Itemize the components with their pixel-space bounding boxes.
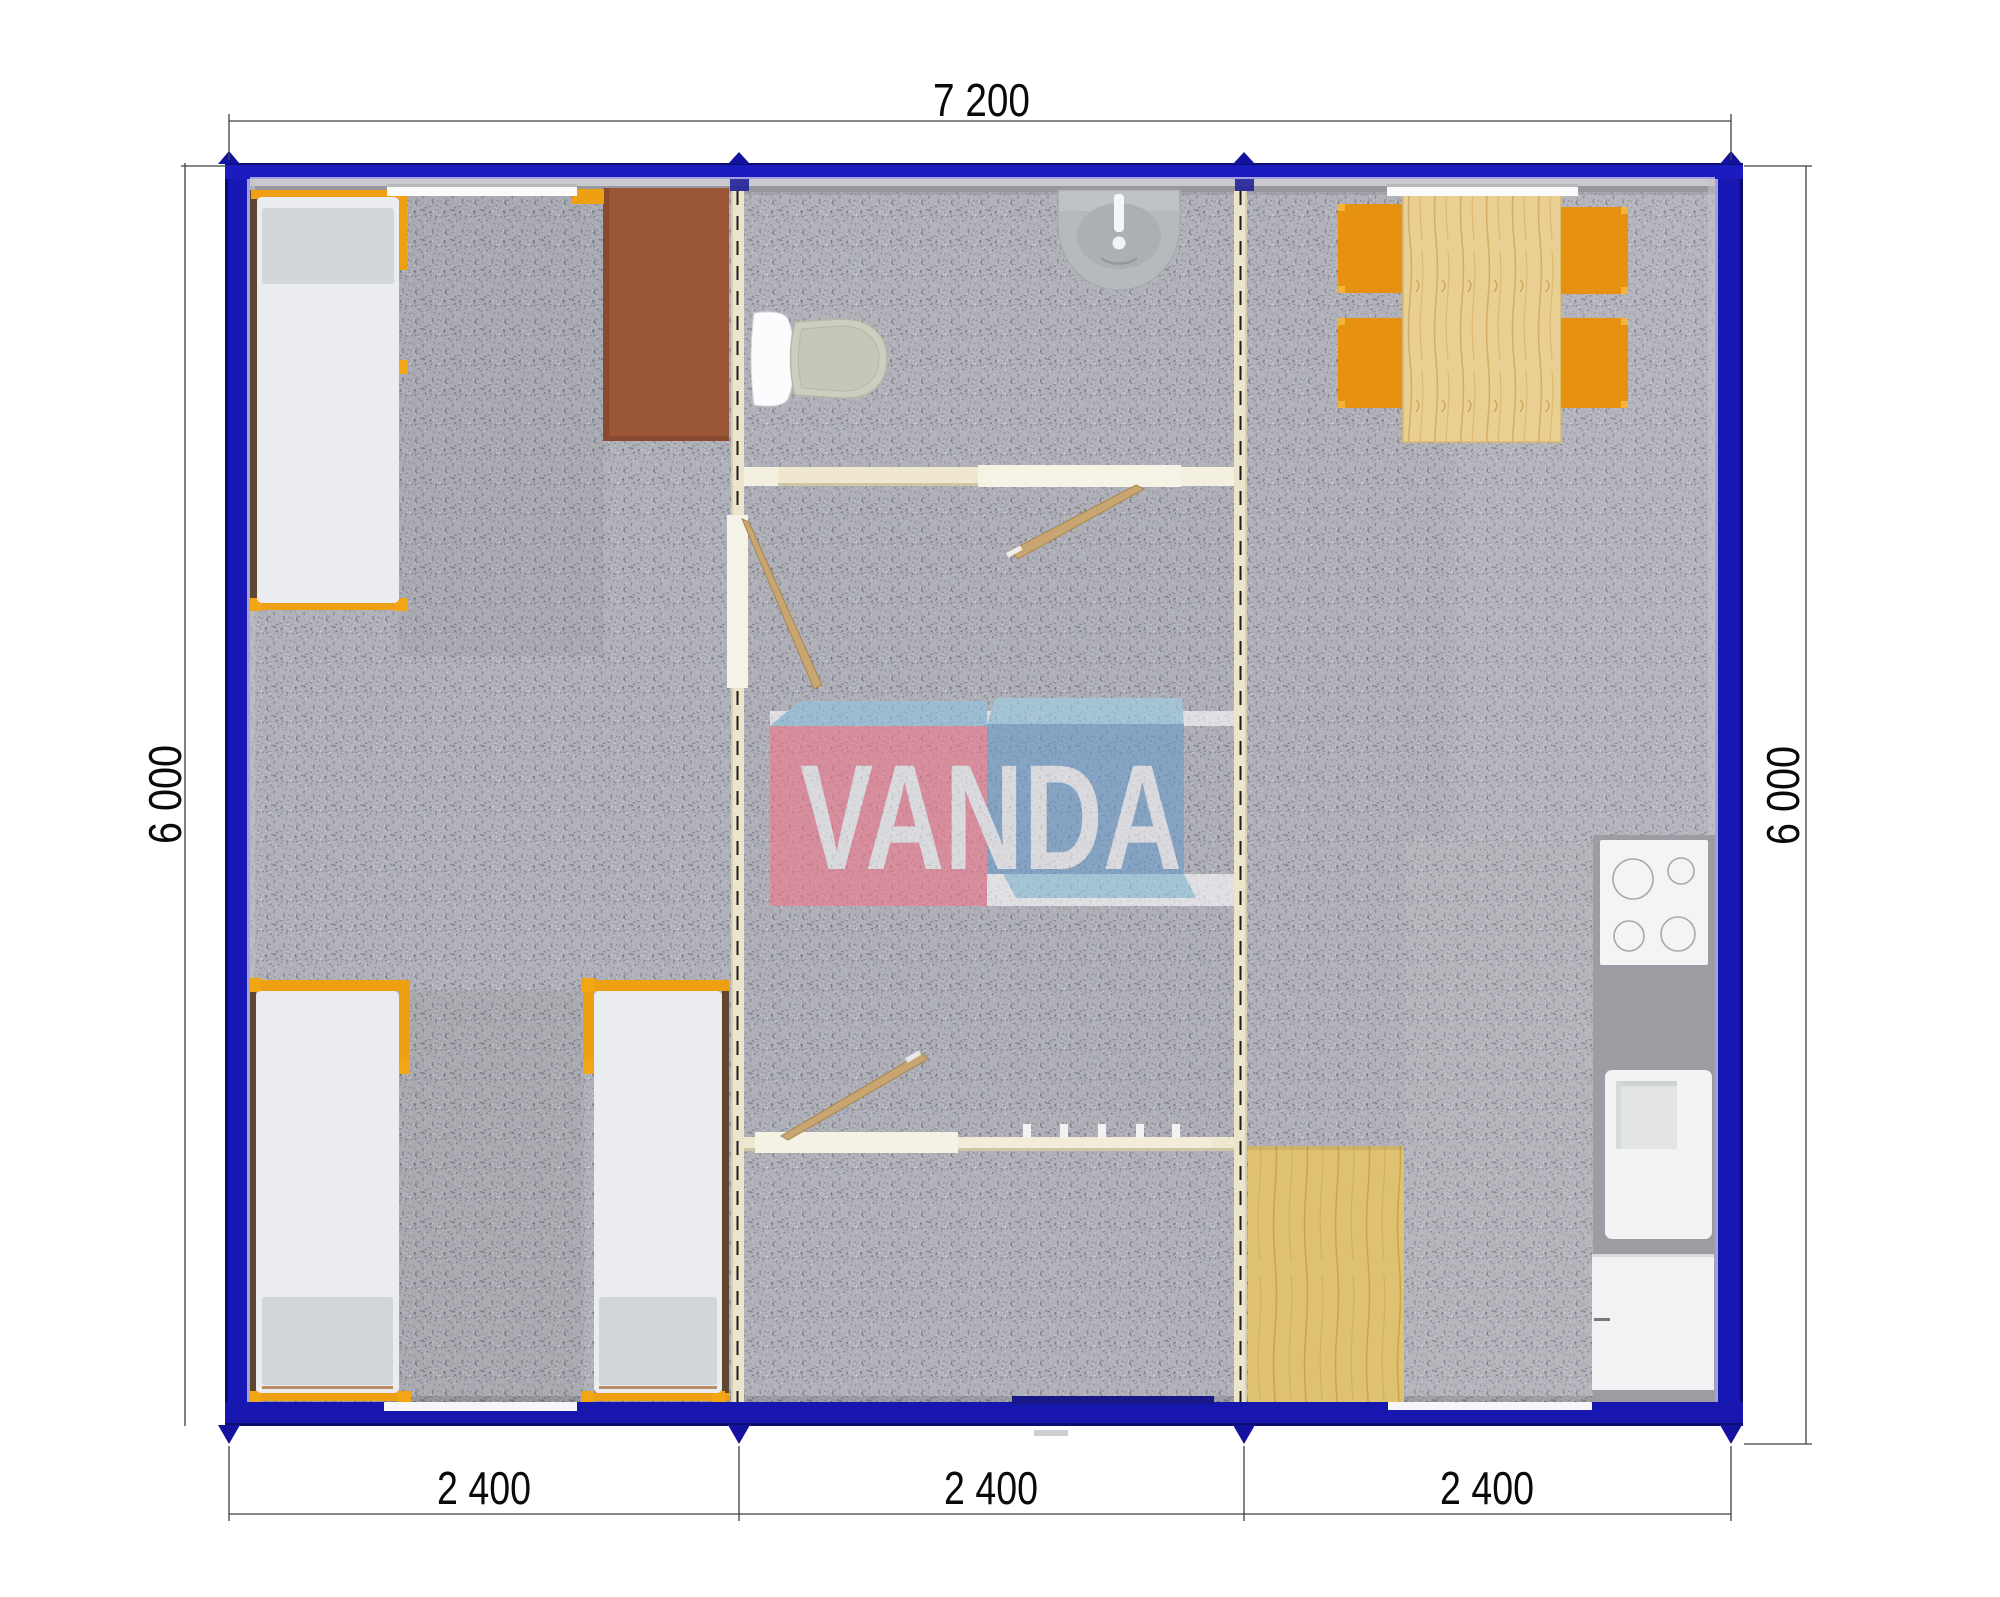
svg-text:2 400: 2 400 bbox=[437, 1462, 531, 1514]
svg-text:6 000: 6 000 bbox=[1757, 746, 1809, 845]
svg-text:7 200: 7 200 bbox=[933, 74, 1030, 126]
svg-text:6 000: 6 000 bbox=[139, 745, 191, 844]
svg-text:VANDA: VANDA bbox=[800, 733, 1182, 901]
svg-text:2 400: 2 400 bbox=[1440, 1462, 1534, 1514]
svg-text:2 400: 2 400 bbox=[944, 1462, 1038, 1514]
